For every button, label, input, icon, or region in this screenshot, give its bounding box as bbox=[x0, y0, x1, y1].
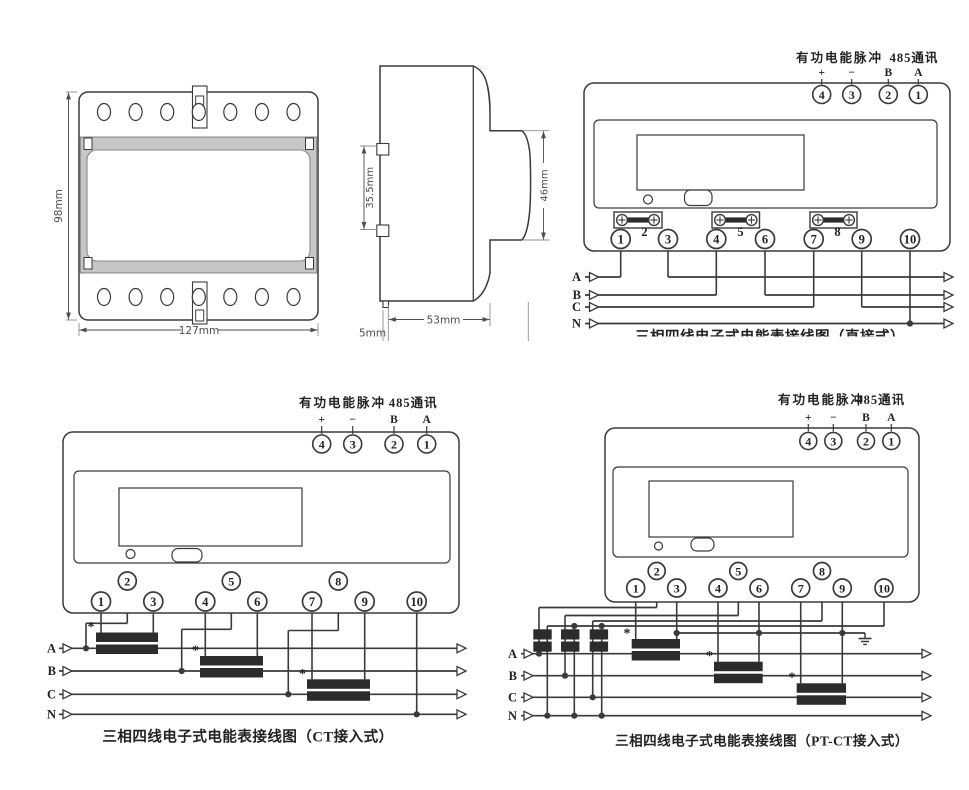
din-clip bbox=[377, 144, 389, 156]
arrow-icon bbox=[457, 710, 466, 719]
terminal-number-plain: 5 bbox=[737, 225, 743, 239]
terminal-number: 3 bbox=[674, 582, 680, 596]
arrow-icon bbox=[944, 273, 953, 282]
terminal-number-plain: 8 bbox=[834, 225, 840, 239]
ct-primary-bar bbox=[632, 651, 680, 661]
arrow-icon bbox=[922, 671, 931, 680]
terminal-sign: + bbox=[318, 414, 325, 426]
wiring-diagram-direct: ABCN有功电能脉冲485通讯+4−3B2A113467910258三相四线电子… bbox=[572, 50, 953, 346]
terminal-number: 7 bbox=[798, 582, 804, 596]
arrow-icon bbox=[524, 711, 533, 720]
terminal-hole bbox=[129, 104, 142, 121]
ct-polarity-mark: * bbox=[624, 627, 631, 642]
arrow-icon bbox=[63, 690, 72, 699]
pulse-output-label: 有功电能脉冲 bbox=[796, 50, 883, 65]
lcd-display bbox=[637, 135, 804, 190]
terminal-hole bbox=[98, 104, 111, 121]
dim-53mm: 53mm bbox=[427, 315, 461, 327]
led-indicator bbox=[126, 550, 135, 559]
ct-primary-bar bbox=[307, 691, 370, 701]
pulse-output-label: 有功电能脉冲 bbox=[299, 395, 386, 410]
arrow-icon bbox=[63, 644, 72, 653]
terminal-sign: − bbox=[830, 412, 837, 424]
ct-polarity-mark: * bbox=[192, 644, 199, 659]
dim-5mm: 5mm bbox=[359, 328, 386, 340]
phase-label: N bbox=[572, 317, 581, 331]
dim-arrow bbox=[389, 317, 396, 322]
terminal-number: 3 bbox=[665, 233, 671, 247]
terminal-number: 2 bbox=[391, 438, 397, 452]
dim-arrow bbox=[311, 328, 318, 333]
terminal-3: 3 bbox=[659, 230, 678, 249]
aux-terminal-4: 4 bbox=[313, 435, 331, 453]
terminal-link-seal bbox=[614, 212, 662, 228]
terminal-8: 8 bbox=[814, 563, 831, 580]
arrow-icon bbox=[524, 671, 533, 680]
caption-pt-ct: 三相四线电子式电能表接线图（PT-CT接入式） bbox=[615, 733, 909, 749]
caption-direct: 三相四线电子式电能表接线图（直接式） bbox=[635, 328, 905, 346]
lcd-display bbox=[649, 481, 793, 537]
junction-dot bbox=[599, 713, 605, 719]
dim-arrow bbox=[541, 233, 546, 240]
dim-arrow bbox=[66, 313, 71, 320]
arrow-icon bbox=[590, 303, 599, 312]
phase-label: C bbox=[47, 688, 56, 702]
phase-label: C bbox=[572, 300, 581, 314]
terminal-number: 6 bbox=[762, 233, 768, 247]
aux-terminal-3: 3 bbox=[344, 435, 362, 453]
arrow-icon bbox=[524, 649, 533, 658]
lcd-display bbox=[119, 488, 302, 546]
pt-secondary-bar bbox=[561, 642, 579, 652]
terminal-sign: A bbox=[887, 412, 896, 424]
dim-arrow bbox=[362, 147, 367, 154]
terminal-hole bbox=[287, 104, 300, 121]
terminal-sign: + bbox=[818, 67, 825, 79]
arrow-icon bbox=[63, 710, 72, 719]
dim-arrow bbox=[66, 93, 71, 100]
aux-terminal-4: 4 bbox=[813, 86, 831, 104]
terminal-3: 3 bbox=[668, 579, 686, 597]
front-window bbox=[87, 150, 310, 261]
terminal-number: 4 bbox=[319, 438, 325, 452]
terminal-5: 5 bbox=[222, 572, 240, 590]
dim-98mm: 98mm bbox=[53, 189, 65, 223]
arrow-icon bbox=[944, 291, 953, 300]
ct-secondary-bar bbox=[96, 633, 158, 643]
dim-arrow bbox=[80, 328, 87, 333]
terminal-number: 5 bbox=[228, 575, 234, 589]
terminal-number: 7 bbox=[811, 233, 817, 247]
terminal-sign: A bbox=[423, 414, 432, 426]
terminal-sign: B bbox=[884, 67, 892, 79]
terminal-7: 7 bbox=[303, 592, 322, 611]
terminal-number: 1 bbox=[98, 595, 104, 609]
notch bbox=[84, 138, 92, 150]
rs485-label: 485通讯 bbox=[856, 392, 905, 407]
terminal-9: 9 bbox=[852, 230, 871, 249]
pt-primary-bar bbox=[533, 629, 551, 639]
terminal-link-seal bbox=[712, 212, 760, 228]
terminal-number: 3 bbox=[150, 595, 156, 609]
arrow-icon bbox=[524, 693, 533, 702]
button bbox=[172, 549, 202, 563]
terminal-number: 6 bbox=[756, 582, 762, 596]
terminal-1: 1 bbox=[627, 579, 645, 597]
ct-primary-bar bbox=[200, 668, 263, 678]
terminal-number: 10 bbox=[878, 582, 890, 596]
side-view-panel: 35.5mm46mm53mm5mm bbox=[359, 66, 551, 341]
terminal-10: 10 bbox=[901, 230, 920, 249]
side-profile bbox=[380, 66, 531, 301]
terminal-number: 1 bbox=[424, 438, 430, 452]
aux-terminal-1: 1 bbox=[418, 435, 436, 453]
ct-primary-bar bbox=[714, 674, 763, 684]
led-indicator bbox=[644, 195, 653, 204]
terminal-hole bbox=[255, 289, 268, 306]
arrow-icon bbox=[457, 690, 466, 699]
terminal-10: 10 bbox=[875, 579, 893, 597]
terminal-number: 10 bbox=[904, 233, 917, 247]
dim-127mm: 127mm bbox=[179, 325, 220, 337]
phase-label: A bbox=[47, 642, 56, 656]
rs485-label: 485通讯 bbox=[890, 50, 939, 65]
phase-label: A bbox=[572, 270, 581, 284]
terminal-number: 8 bbox=[335, 575, 341, 589]
aux-terminal-2: 2 bbox=[385, 435, 403, 453]
terminal-number: 3 bbox=[350, 438, 356, 452]
junction-dot bbox=[590, 694, 596, 700]
arrow-icon bbox=[922, 711, 931, 720]
terminal-1: 1 bbox=[611, 230, 630, 249]
dim-arrow bbox=[541, 131, 546, 138]
phase-label: A bbox=[508, 647, 517, 661]
terminal-hole bbox=[98, 289, 111, 306]
dim-arrow bbox=[483, 317, 490, 322]
terminal-1: 1 bbox=[92, 592, 111, 611]
front-view-panel: 98mm127mm bbox=[53, 86, 318, 337]
terminal-number: 2 bbox=[863, 435, 869, 449]
terminal-sign: A bbox=[914, 67, 923, 79]
caption-ct: 三相四线电子式电能表接线图（CT接入式） bbox=[102, 728, 393, 746]
terminal-number: 4 bbox=[713, 233, 720, 247]
terminal-3: 3 bbox=[144, 592, 163, 611]
terminal-sign: B bbox=[862, 412, 870, 424]
terminal-number: 5 bbox=[735, 565, 741, 579]
arrow-icon bbox=[922, 693, 931, 702]
aux-terminal-3: 3 bbox=[843, 86, 861, 104]
terminal-7: 7 bbox=[804, 230, 823, 249]
rs485-label: 485通讯 bbox=[389, 395, 438, 410]
terminal-hole bbox=[192, 289, 205, 306]
ct-polarity-mark: * bbox=[299, 667, 306, 682]
ct-polarity-mark: * bbox=[706, 649, 713, 664]
terminal-number: 2 bbox=[885, 88, 891, 102]
notch bbox=[306, 258, 314, 270]
terminal-number: 4 bbox=[202, 595, 209, 609]
junction-dot bbox=[544, 713, 550, 719]
terminal-6: 6 bbox=[248, 592, 267, 611]
earth-icon bbox=[859, 633, 872, 645]
terminal-number: 1 bbox=[915, 88, 921, 102]
ct-secondary-bar bbox=[307, 679, 370, 689]
terminal-7: 7 bbox=[792, 579, 810, 597]
terminal-5: 5 bbox=[730, 563, 747, 580]
terminal-sign: − bbox=[848, 67, 855, 79]
terminal-sign: − bbox=[349, 414, 356, 426]
phase-label: N bbox=[508, 709, 517, 723]
pulse-output-label: 有功电能脉冲 bbox=[778, 392, 865, 407]
pt-secondary-bar bbox=[590, 642, 608, 652]
terminal-number: 2 bbox=[654, 565, 660, 579]
ct-polarity-mark: * bbox=[789, 671, 796, 686]
junction-dot bbox=[83, 645, 89, 651]
wiring-diagram-pt-ct: ABCN***有功电能脉冲485通讯+4−3B2A125813467910三相四… bbox=[508, 392, 931, 749]
din-foot bbox=[383, 301, 389, 308]
aux-terminal-2: 2 bbox=[858, 433, 875, 450]
terminal-9: 9 bbox=[355, 592, 374, 611]
pt-secondary-bar bbox=[533, 642, 551, 652]
junction-dot bbox=[907, 320, 913, 326]
terminal-number: 6 bbox=[254, 595, 260, 609]
junction-dot bbox=[179, 668, 185, 674]
ct-primary-bar bbox=[96, 645, 158, 655]
arrow-icon bbox=[63, 667, 72, 676]
notch bbox=[84, 258, 92, 270]
aux-terminal-1: 1 bbox=[909, 86, 927, 104]
ct-secondary-bar bbox=[714, 662, 763, 672]
terminal-number: 4 bbox=[715, 582, 721, 596]
arrow-icon bbox=[590, 319, 599, 328]
terminal-number: 7 bbox=[309, 595, 315, 609]
terminal-number: 9 bbox=[859, 233, 865, 247]
arrow-icon bbox=[922, 649, 931, 658]
ct-polarity-mark: * bbox=[88, 620, 95, 635]
terminal-number: 1 bbox=[633, 582, 639, 596]
terminal-number: 3 bbox=[849, 88, 855, 102]
technical-drawing: 98mm127mm 35.5mm46mm53mm5mm ABCN有功电能脉冲48… bbox=[0, 0, 969, 790]
arrow-icon bbox=[590, 291, 599, 300]
terminal-hole bbox=[161, 289, 174, 306]
ct-primary-bar bbox=[797, 695, 846, 705]
aux-terminal-2: 2 bbox=[879, 86, 897, 104]
terminal-hole bbox=[129, 289, 142, 306]
dim-arrow bbox=[362, 222, 367, 229]
terminal-number: 8 bbox=[819, 565, 825, 579]
terminal-number: 1 bbox=[888, 435, 894, 449]
aux-terminal-1: 1 bbox=[883, 433, 900, 450]
led-indicator bbox=[655, 542, 663, 550]
terminal-number: 10 bbox=[410, 595, 423, 609]
arrow-icon bbox=[944, 319, 953, 328]
datasheet-page: 98mm127mm 35.5mm46mm53mm5mm ABCN有功电能脉冲48… bbox=[0, 0, 969, 790]
terminal-6: 6 bbox=[756, 230, 775, 249]
terminal-number: 3 bbox=[830, 435, 836, 449]
terminal-number: 4 bbox=[819, 88, 825, 102]
terminal-4: 4 bbox=[196, 592, 215, 611]
arrow-icon bbox=[944, 303, 953, 312]
terminal-10: 10 bbox=[407, 592, 426, 611]
notch bbox=[306, 138, 314, 150]
junction-dot bbox=[571, 713, 577, 719]
arrow-icon bbox=[590, 273, 599, 282]
terminal-hole bbox=[255, 104, 268, 121]
terminal-hole bbox=[224, 289, 237, 306]
terminal-hole bbox=[287, 289, 300, 306]
terminal-number-plain: 2 bbox=[641, 225, 647, 239]
terminal-4: 4 bbox=[707, 230, 726, 249]
ct-secondary-bar bbox=[200, 656, 263, 666]
junction-dot bbox=[562, 673, 568, 679]
terminal-number: 9 bbox=[362, 595, 368, 609]
junction-dot bbox=[414, 711, 420, 717]
arrow-icon bbox=[457, 667, 466, 676]
aux-terminal-3: 3 bbox=[825, 433, 842, 450]
terminal-9: 9 bbox=[833, 579, 851, 597]
terminal-number: 1 bbox=[618, 233, 624, 247]
pt-primary-bar bbox=[590, 629, 608, 639]
terminal-number: 2 bbox=[124, 575, 130, 589]
arrow-icon bbox=[457, 644, 466, 653]
terminal-hole bbox=[192, 104, 205, 121]
ct-secondary-bar bbox=[797, 683, 846, 693]
terminal-2: 2 bbox=[118, 572, 136, 590]
terminal-6: 6 bbox=[750, 579, 768, 597]
terminal-sign: B bbox=[390, 414, 398, 426]
dim-46mm: 46mm bbox=[540, 169, 551, 201]
button bbox=[691, 538, 714, 551]
button bbox=[685, 190, 713, 206]
aux-terminal-4: 4 bbox=[800, 433, 817, 450]
phase-label: B bbox=[48, 664, 56, 678]
junction-dot bbox=[285, 691, 291, 697]
terminal-8: 8 bbox=[329, 572, 347, 590]
ct-secondary-bar bbox=[632, 639, 680, 649]
dim-35-5mm: 35.5mm bbox=[365, 167, 376, 209]
phase-label: N bbox=[47, 708, 56, 722]
phase-label: C bbox=[508, 691, 517, 705]
terminal-4: 4 bbox=[709, 579, 727, 597]
terminal-number: 4 bbox=[805, 435, 811, 449]
wiring-diagram-ct: ABCN***有功电能脉冲485通讯+4−3B2A125813467910三相四… bbox=[47, 395, 466, 746]
terminal-sign: + bbox=[805, 412, 812, 424]
terminal-2: 2 bbox=[648, 563, 665, 580]
phase-label: B bbox=[509, 669, 517, 683]
pt-primary-bar bbox=[561, 629, 579, 639]
terminal-hole bbox=[161, 104, 174, 121]
terminal-number: 9 bbox=[839, 582, 845, 596]
terminal-hole bbox=[224, 104, 237, 121]
din-clip bbox=[377, 225, 389, 237]
